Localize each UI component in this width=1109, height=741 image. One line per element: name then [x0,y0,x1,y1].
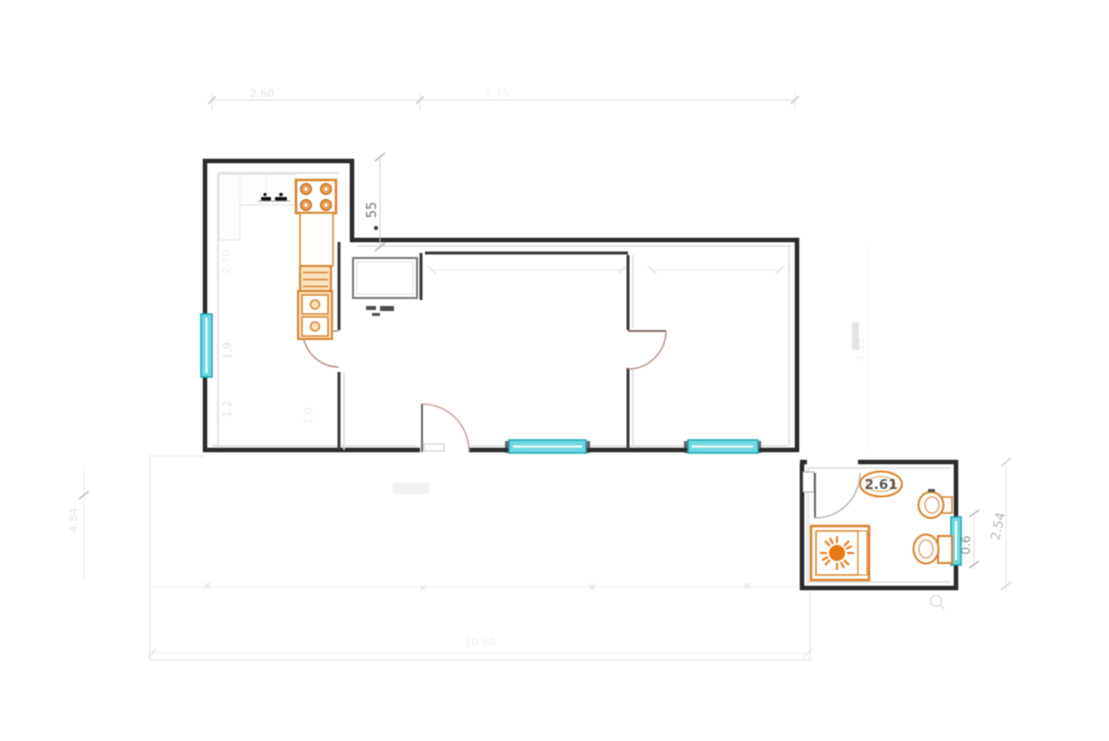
wall-counter [219,174,296,240]
terrace-outline [150,456,810,660]
kitchen-fixtures [219,174,336,339]
dim-step: 55 [365,153,385,251]
dim-bath-window: 0.6 [959,510,979,570]
drawer-unit-icon [300,266,331,291]
dim-label-right-main: 3.55 [854,338,867,363]
dim-label-bottom-width: 10.60 [464,636,496,649]
dim-label-top-left: 2.60 [250,87,275,100]
dim-label-kitchen-depth: 2.70 [220,250,233,275]
bedroom-window [684,440,761,453]
bathroom-door-arc [815,473,860,518]
double-sink-icon [298,291,332,339]
dim-label-top-right: 5.75 [485,87,510,100]
dim-label-bath-depth: 2.54 [987,511,1007,541]
shower-icon [811,526,869,580]
entry-door [422,404,469,452]
kitchen-window [201,314,212,377]
kitchen-counter [300,213,333,266]
interior-walls [339,242,628,450]
closet-inner [357,262,413,294]
dim-bath-depth: 2.54 [987,458,1011,592]
dim-step-dot [374,226,378,230]
stove-icon [296,180,336,213]
interior-dim-lines [428,266,784,274]
bedroom-door-arc [628,331,666,369]
dim-label-kitchen-a: 1.9 [221,342,234,360]
bedroom-door [628,331,666,369]
dim-right-main: 3.55 [852,246,868,450]
dim-top: 2.60 5.75 [208,87,799,110]
terrace-wall [150,456,810,660]
dim-label-step: 55 [365,202,380,219]
toilet-icon [914,535,953,564]
closet [353,258,417,316]
bidet-icon [919,489,953,518]
dim-label-bath-window: 0.6 [959,535,973,554]
dim-label-bath-width: 2.61 [864,477,897,493]
dim-bottom: 10.60 [148,636,812,657]
bathroom-door [803,472,860,518]
doors [303,331,860,518]
living-room-window [505,440,590,453]
shower-sun-center [829,545,845,561]
closet-box [353,258,417,298]
floor-drain-icon [931,596,945,610]
dim-label-left-height: 4.84 [67,508,80,533]
dim-left: 4.84 [67,470,89,580]
shelf-marks [366,306,394,316]
floor-plan-canvas: 2.60 5.75 55 2.70 1.9 1.2 1.0 4.84 3.55 … [0,0,1109,741]
dim-label-kitchen-b: 1.2 [221,400,234,418]
bidet-tap [928,489,935,492]
floor-plan-page: 2.60 5.75 55 2.70 1.9 1.2 1.0 4.84 3.55 … [0,0,1109,741]
faint-annotation [393,483,429,494]
dim-label-kitchen-c: 1.0 [302,407,315,425]
